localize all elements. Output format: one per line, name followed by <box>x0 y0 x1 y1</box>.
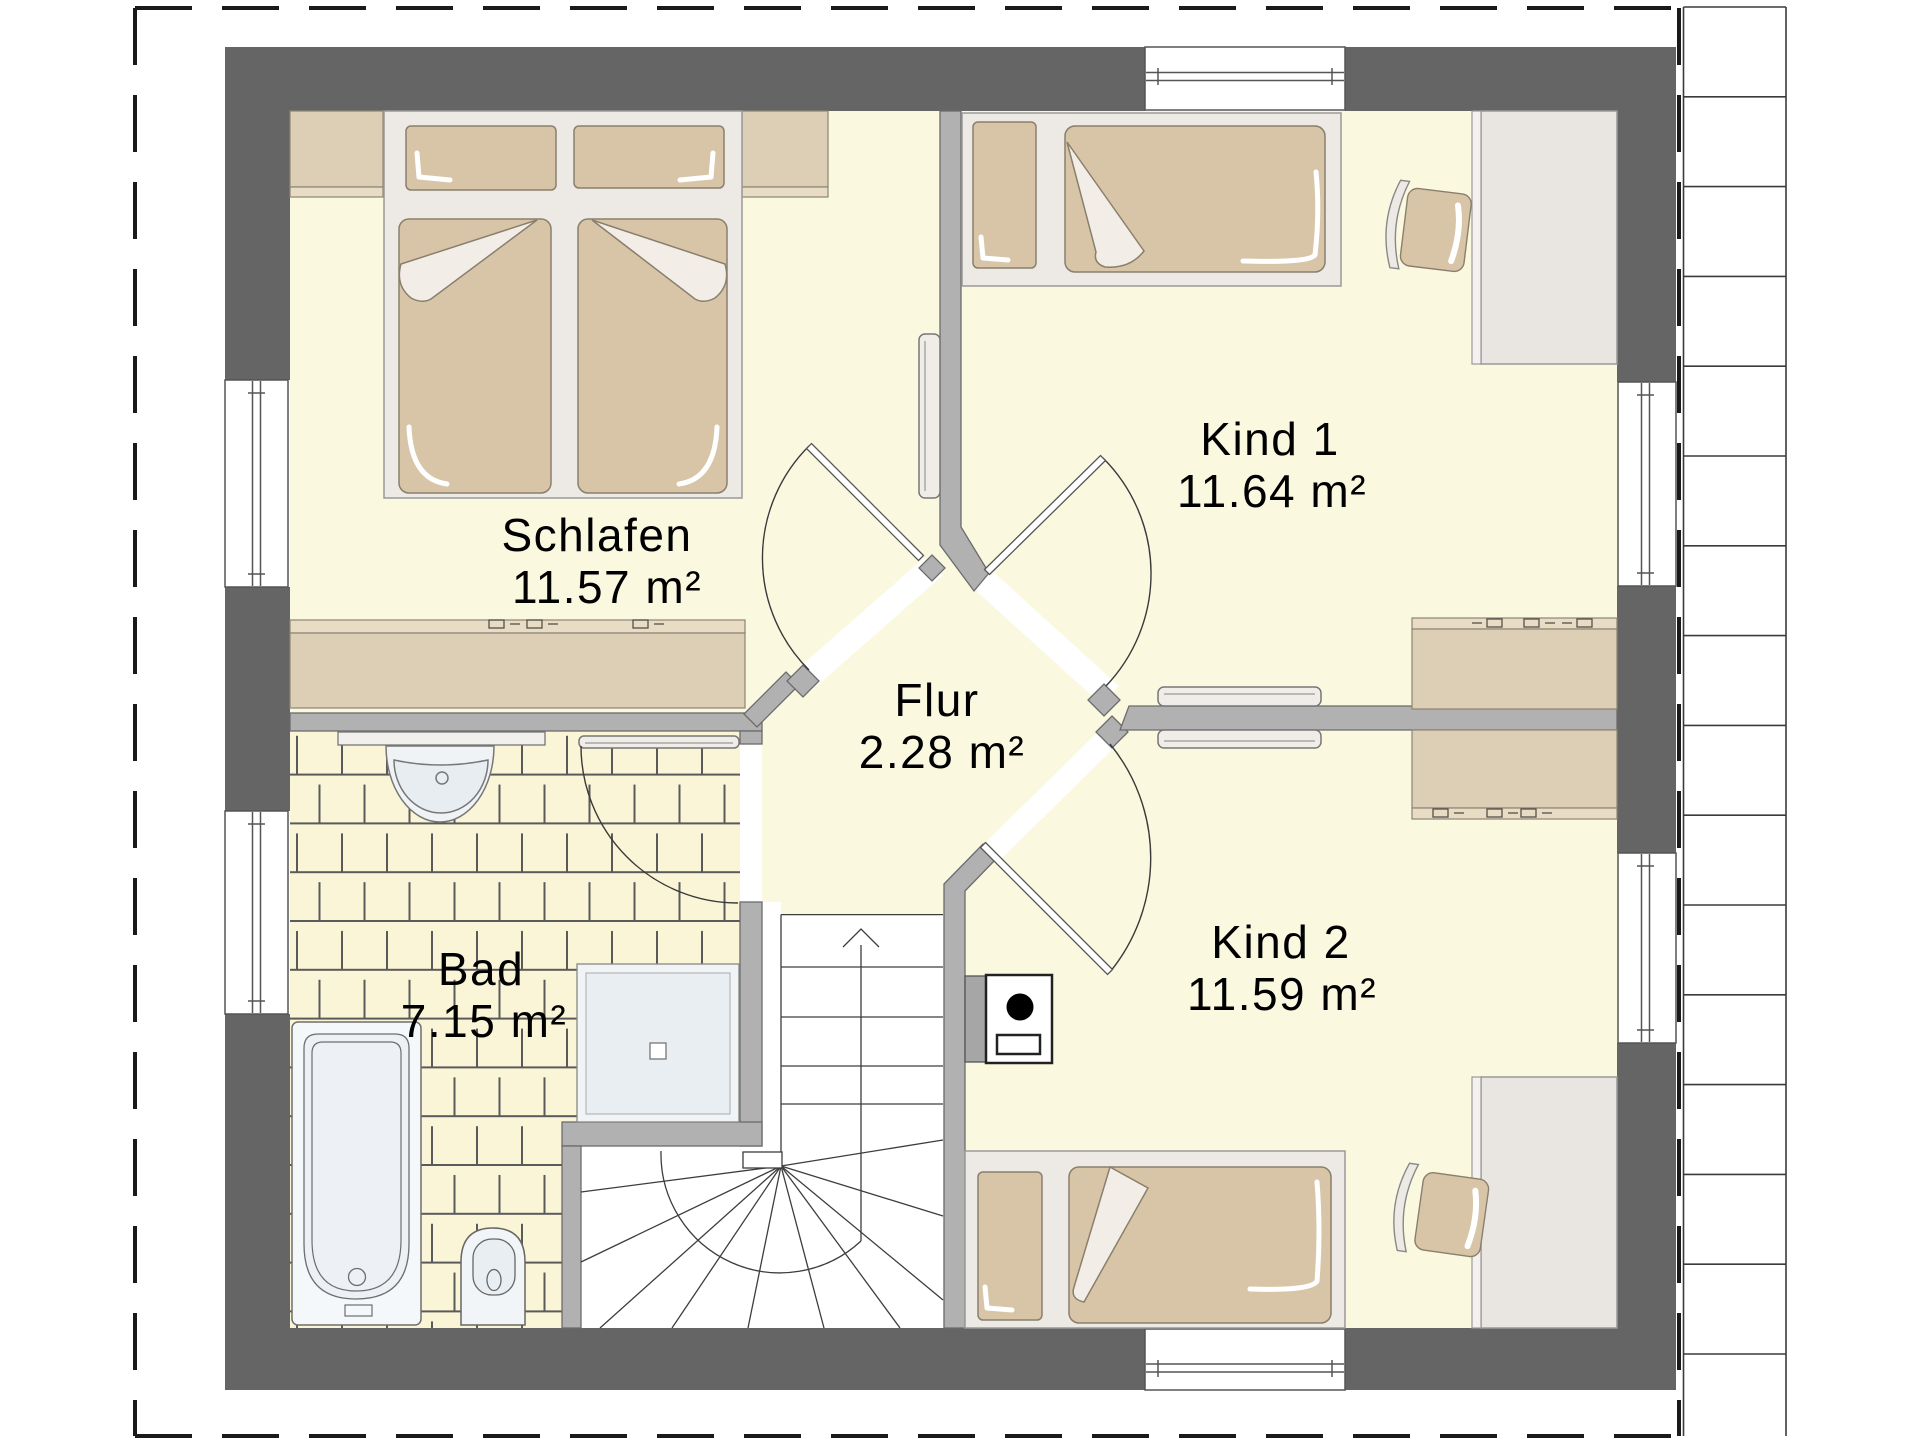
svg-text:Kind 1: Kind 1 <box>1200 413 1339 465</box>
svg-text:11.64 m²: 11.64 m² <box>1177 465 1367 517</box>
svg-text:Bad: Bad <box>438 943 524 995</box>
svg-text:2.28 m²: 2.28 m² <box>859 726 1025 778</box>
svg-text:Kind 2: Kind 2 <box>1211 916 1350 968</box>
svg-text:Schlafen: Schlafen <box>501 509 692 561</box>
svg-text:11.57 m²: 11.57 m² <box>512 561 702 613</box>
svg-text:Flur: Flur <box>894 674 979 726</box>
svg-text:11.59 m²: 11.59 m² <box>1187 968 1377 1020</box>
svg-text:7.15 m²: 7.15 m² <box>401 995 567 1047</box>
